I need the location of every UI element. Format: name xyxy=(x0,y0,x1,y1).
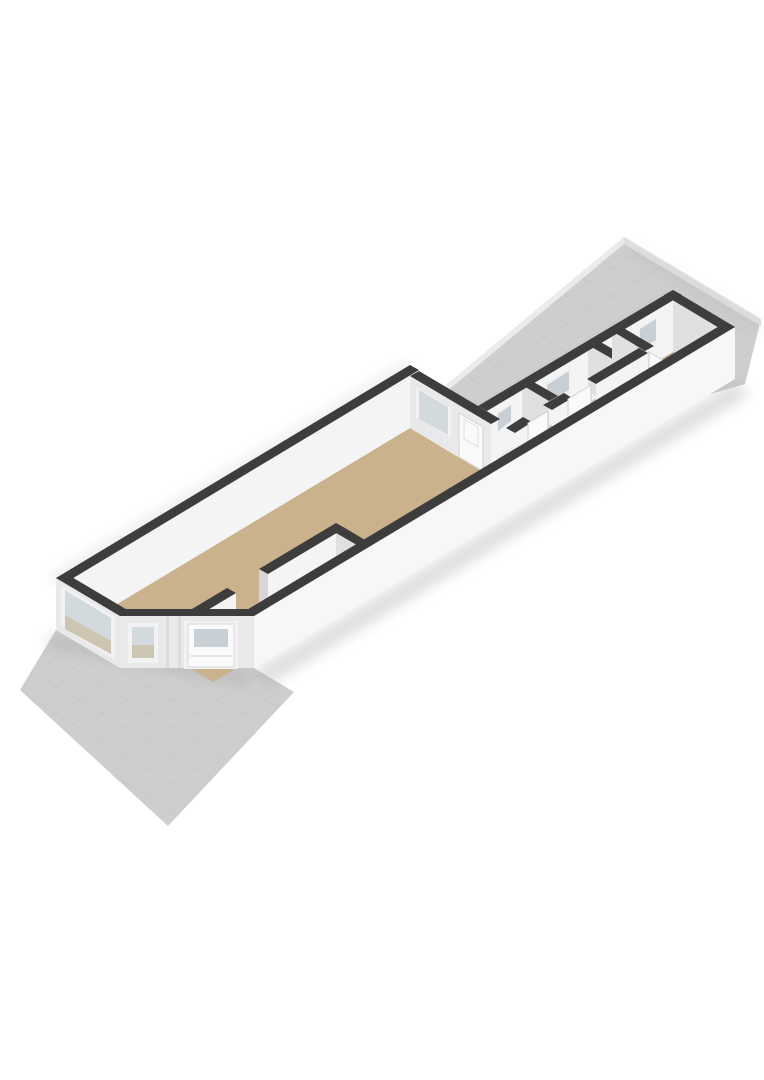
facade-seam-1 xyxy=(166,616,169,668)
facade-seam-2 xyxy=(178,616,181,668)
front-door-kick-line xyxy=(190,655,232,657)
entrance-chamfer-cap xyxy=(120,609,254,616)
floorplan-canvas xyxy=(0,0,764,1080)
floorplan-3d-render xyxy=(0,0,764,1080)
corner-window-floor-reflection xyxy=(132,645,154,658)
front-door-glass xyxy=(194,629,228,647)
